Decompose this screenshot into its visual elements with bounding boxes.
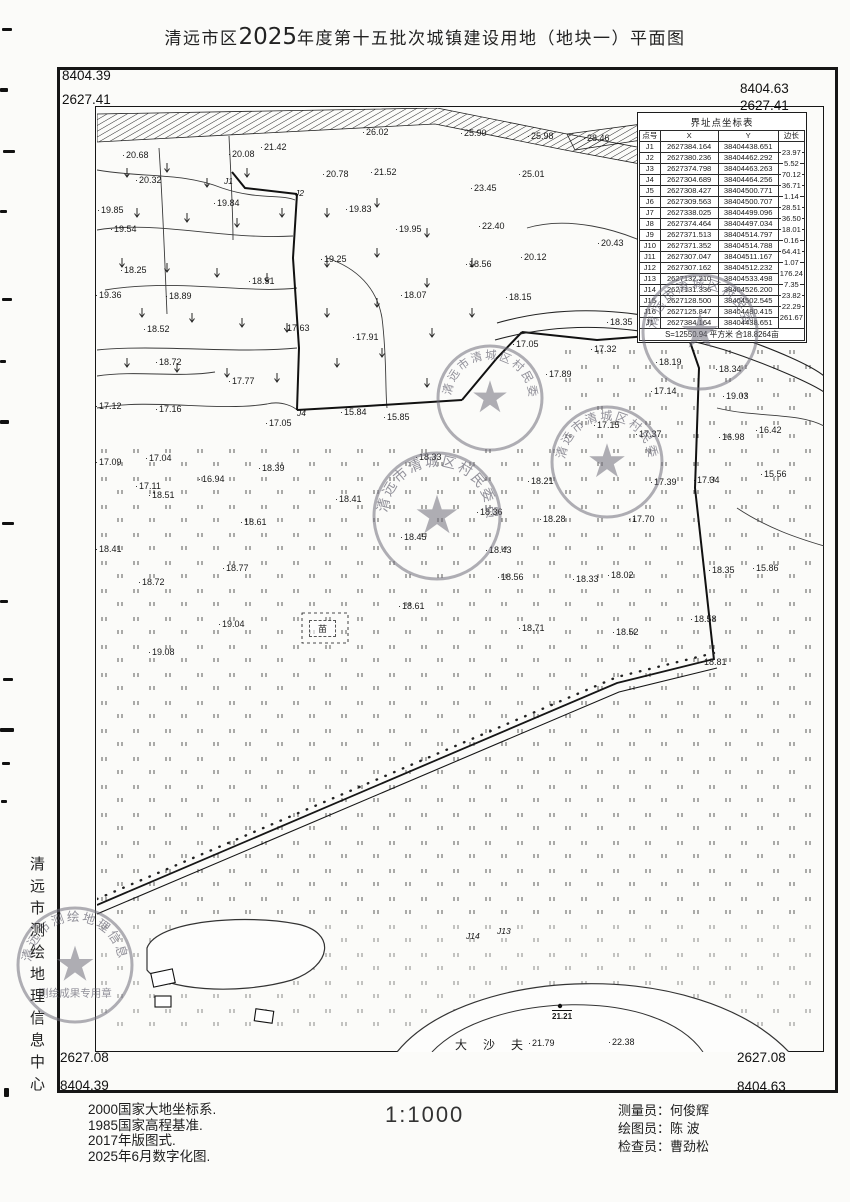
- scan-artifact: [2, 762, 10, 765]
- note-symbology: 2017年版图式.: [88, 1133, 216, 1149]
- scan-artifact: [4, 1088, 9, 1097]
- credit-inspector: 检查员：曹劲松: [618, 1138, 709, 1156]
- note-datum: 2000国家大地坐标系.: [88, 1102, 216, 1118]
- coordinate-row: J12627384.16438404438.651261.67: [640, 318, 805, 329]
- corner-coord-bottom-right-y: 2627.08: [737, 1050, 786, 1065]
- coordinate-row: J42627304.68938404464.25670.12: [640, 175, 805, 186]
- parcel-area-summary: S=12550.94 平方米 合18.8264亩: [639, 329, 805, 341]
- grassland-texture: [99, 438, 821, 916]
- coordinate-row: J132627132.21038404533.498176.24: [640, 274, 805, 285]
- coordinate-row: J82627374.46438404497.03436.50: [640, 219, 805, 230]
- corner-coord-bottom-right-x: 8404.63: [737, 1079, 786, 1094]
- scan-artifact: [2, 522, 14, 525]
- scan-artifact: [0, 210, 7, 213]
- coordinate-row: J22627380.23638404462.29223.97: [640, 153, 805, 164]
- coordinate-row: J32627374.79838404463.2635.52: [640, 164, 805, 175]
- coordinate-row: J72627338.02538404499.09628.51: [640, 208, 805, 219]
- coordinate-row: J142627131.33638404526.2007.35: [640, 285, 805, 296]
- scan-artifact: [0, 420, 9, 424]
- scan-artifact: [2, 28, 12, 31]
- corner-coord-top-right-x: 8404.63: [740, 81, 789, 96]
- boundary-coordinate-table: 界址点坐标表 点号 X Y 边长 J12627384.16438404438.6…: [637, 112, 807, 343]
- coordinate-row: J52627308.42738404500.77136.71: [640, 186, 805, 197]
- credit-draftsman: 绘图员：陈 波: [618, 1120, 709, 1138]
- note-height-datum: 1985国家高程基准.: [88, 1118, 216, 1134]
- corner-coord-top-left-y: 2627.41: [62, 92, 111, 107]
- control-point-marker: [558, 1004, 562, 1008]
- map-credits: 测量员：何俊辉 绘图员：陈 波 检查员：曹劲松: [618, 1102, 709, 1156]
- coordinate-row: J92627371.51338404514.79718.01: [640, 230, 805, 241]
- scan-artifact: [0, 728, 14, 732]
- scan-artifact: [0, 360, 6, 363]
- map-notes: 2000国家大地坐标系. 1985国家高程基准. 2017年版图式. 2025年…: [88, 1102, 216, 1164]
- note-digitized: 2025年6月数字化图.: [88, 1149, 216, 1165]
- scan-artifact: [0, 600, 8, 603]
- coordinate-row: J12627384.16438404438.651: [640, 142, 805, 153]
- corner-coord-bottom-left-x: 8404.39: [60, 1078, 109, 1093]
- scan-artifact: [0, 88, 8, 92]
- coordinate-table-title: 界址点坐标表: [639, 114, 805, 130]
- scan-artifact: [3, 678, 13, 681]
- scan-artifact: [2, 298, 12, 301]
- agency-vertical-text: 清远市测绘地理信息中心: [26, 856, 47, 1098]
- coordinate-row: J62627309.56338404500.7071.14: [640, 197, 805, 208]
- coordinate-row: J112627307.04738404511.16764.41: [640, 252, 805, 263]
- credit-surveyor: 测量员：何俊辉: [618, 1102, 709, 1120]
- coordinate-row: J152627128.50038404502.54523.82: [640, 296, 805, 307]
- corner-coord-bottom-left-y: 2627.08: [60, 1050, 109, 1065]
- corner-coord-top-left-x: 8404.39: [62, 68, 111, 83]
- page-title: 清远市区2025年度第十五批次城镇建设用地（地块一）平面图: [0, 24, 850, 50]
- grassland-texture-right: [557, 346, 821, 441]
- map-scale: 1:1000: [385, 1102, 464, 1128]
- coordinate-row: J102627371.35238404514.7880.16: [640, 241, 805, 252]
- coordinate-table-header: 点号 X Y 边长: [640, 131, 805, 142]
- scan-artifact: [1, 800, 7, 803]
- scan-artifact: [3, 150, 15, 153]
- scanned-plan-page: 清远市区2025年度第十五批次城镇建设用地（地块一）平面图 8404.39 26…: [0, 0, 850, 1202]
